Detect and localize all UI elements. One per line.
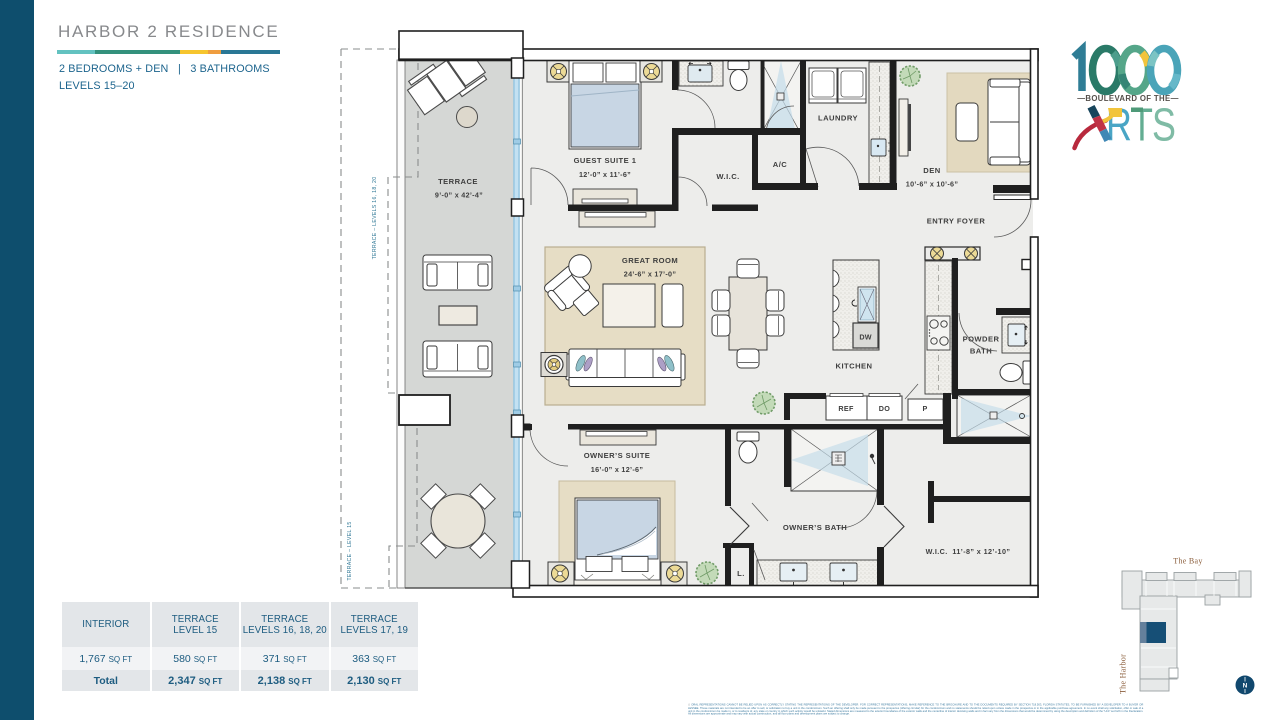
svg-text:P: P xyxy=(922,404,927,413)
svg-text:S: S xyxy=(1152,99,1176,150)
svg-text:T: T xyxy=(1131,99,1153,150)
svg-text:R: R xyxy=(1106,99,1132,150)
svg-text:N: N xyxy=(1243,683,1248,690)
svg-text:16’-0” x 12’-6”: 16’-0” x 12’-6” xyxy=(591,465,644,474)
svg-text:10’-6” x 10’-6”: 10’-6” x 10’-6” xyxy=(906,180,959,189)
svg-text:KITCHEN: KITCHEN xyxy=(836,362,873,371)
svg-text:TERRACE – LEVELS 16, 18, 20: TERRACE – LEVELS 16, 18, 20 xyxy=(372,177,378,260)
svg-text:24’-6” x 17’-0”: 24’-6” x 17’-0” xyxy=(624,270,677,279)
svg-text:OWNER’S BATH: OWNER’S BATH xyxy=(783,523,847,532)
svg-text:POWDER: POWDER xyxy=(963,335,1000,344)
svg-text:W.I.C.: W.I.C. xyxy=(716,172,739,181)
svg-text:GUEST SUITE 1: GUEST SUITE 1 xyxy=(574,156,637,165)
svg-text:12’-0” x 11’-6”: 12’-0” x 11’-6” xyxy=(579,170,631,179)
svg-text:DW: DW xyxy=(859,333,871,342)
svg-text:DEN: DEN xyxy=(923,166,940,175)
svg-text:The Harbor: The Harbor xyxy=(1119,654,1128,694)
svg-text:BATH: BATH xyxy=(970,347,992,356)
svg-text:ENTRY FOYER: ENTRY FOYER xyxy=(927,217,986,226)
svg-text:OWNER’S SUITE: OWNER’S SUITE xyxy=(584,451,651,460)
svg-text:REF: REF xyxy=(838,404,854,413)
svg-text:LAUNDRY: LAUNDRY xyxy=(818,114,858,123)
svg-text:9’-0” x 42’-4”: 9’-0” x 42’-4” xyxy=(435,191,483,200)
svg-text:TERRACE – LEVEL 15: TERRACE – LEVEL 15 xyxy=(347,521,353,580)
svg-text:DO: DO xyxy=(879,404,890,413)
svg-text:L.: L. xyxy=(737,569,745,578)
svg-text:TERRACE: TERRACE xyxy=(438,177,478,186)
svg-text:A/C: A/C xyxy=(773,160,787,169)
svg-text:W.I.C. 11’-8” x 12’-10”: W.I.C. 11’-8” x 12’-10” xyxy=(926,547,1011,556)
svg-text:The Bay: The Bay xyxy=(1173,557,1202,566)
svg-text:GREAT ROOM: GREAT ROOM xyxy=(622,256,678,265)
